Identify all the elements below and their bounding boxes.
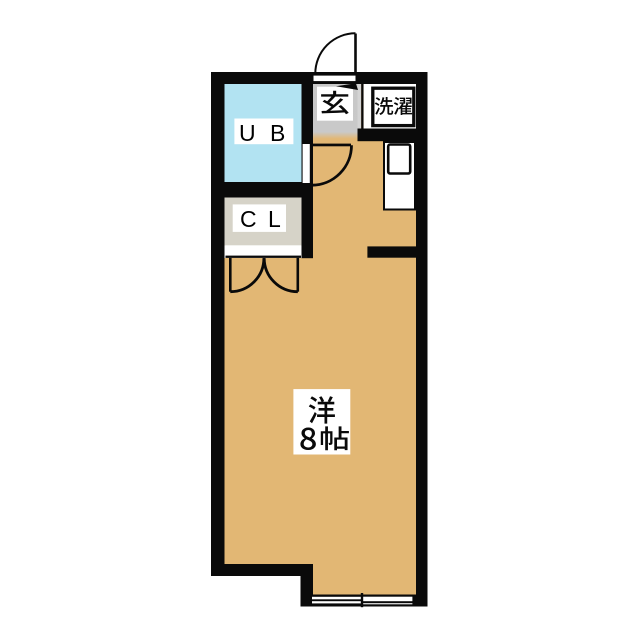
svg-text:U: U <box>239 120 256 146</box>
svg-text:C: C <box>240 206 257 232</box>
svg-text:L: L <box>268 206 281 232</box>
svg-text:B: B <box>270 120 285 146</box>
